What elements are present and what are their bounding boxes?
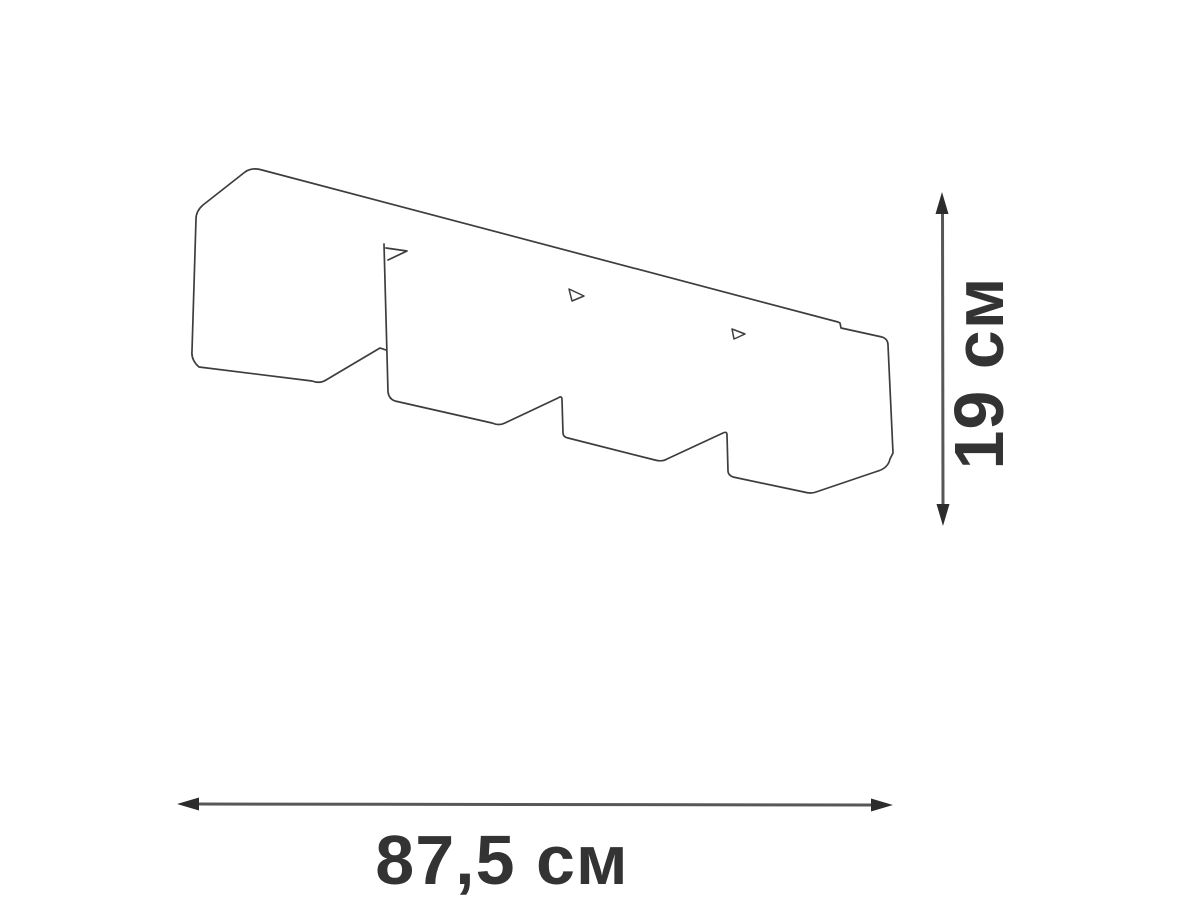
clip-mark-2 — [732, 329, 745, 339]
width-arrow-head-left-icon — [177, 798, 199, 811]
height-dimension-label: 19 см — [940, 276, 1018, 469]
height-arrow-head-bottom-icon — [937, 504, 950, 526]
width-arrow-head-right-icon — [871, 799, 893, 812]
fixture-drawing — [192, 169, 893, 493]
width-arrow-line — [197, 804, 873, 805]
mounting-tab-outline — [386, 248, 407, 260]
clip-mark-1 — [569, 289, 584, 301]
width-dimension: 87,5 см — [177, 798, 893, 900]
dimension-diagram-canvas: 19 см 87,5 см — [0, 0, 1200, 900]
width-dimension-label: 87,5 см — [375, 821, 628, 899]
fixture-outline — [192, 169, 893, 493]
height-arrow-head-top-icon — [936, 192, 949, 214]
height-dimension: 19 см — [936, 192, 1019, 526]
product-dimension-diagram: 19 см 87,5 см — [0, 0, 1200, 900]
